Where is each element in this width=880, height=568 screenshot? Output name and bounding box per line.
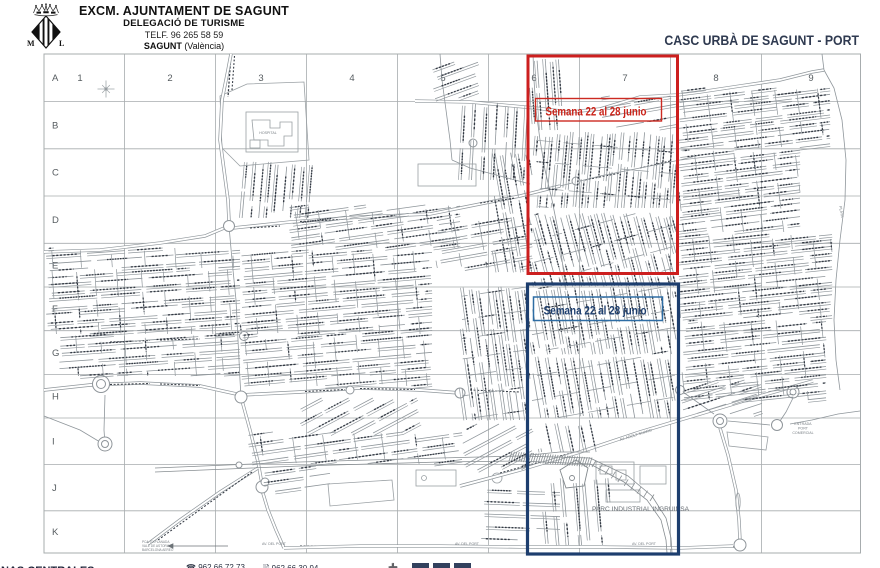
svg-text:M: M [27, 39, 35, 48]
svg-text:BARCELONA AEREO: BARCELONA AEREO [142, 548, 174, 552]
svg-text:AV. DEL PORT: AV. DEL PORT [262, 542, 287, 546]
svg-text:C: C [52, 168, 59, 179]
svg-text:PORT: PORT [798, 427, 809, 431]
svg-text:Semana 22 al 28 junio: Semana 22 al 28 junio [546, 104, 647, 118]
svg-text:3: 3 [258, 73, 263, 84]
svg-text:CASC URBÀ DE SAGUNT - PORT: CASC URBÀ DE SAGUNT - PORT [664, 32, 859, 48]
svg-text:B: B [52, 120, 58, 131]
svg-text:9: 9 [808, 73, 813, 84]
svg-text:AV. DEL PORT: AV. DEL PORT [455, 542, 480, 546]
svg-text:PARC INDUSTRIAL INGRUINSA: PARC INDUSTRIAL INGRUINSA [592, 506, 690, 513]
svg-text:4: 4 [349, 73, 354, 84]
svg-text:Semana 22 al 28 junio: Semana 22 al 28 junio [544, 304, 647, 318]
svg-text:G: G [52, 348, 59, 359]
svg-text:COMERCIAL: COMERCIAL [792, 431, 813, 435]
svg-text:AV. ADOLF SUARO: AV. ADOLF SUARO [619, 428, 652, 442]
svg-text:H: H [52, 392, 59, 403]
svg-text:J: J [52, 483, 57, 494]
svg-text:AV. DEL PORT: AV. DEL PORT [632, 542, 657, 546]
svg-text:1: 1 [77, 73, 82, 84]
svg-text:D: D [52, 215, 59, 226]
svg-text:7: 7 [622, 73, 627, 84]
svg-text:I: I [52, 437, 55, 448]
svg-text:HOSPITAL: HOSPITAL [259, 131, 277, 135]
svg-text:PLAYA: PLAYA [838, 206, 844, 219]
svg-text:2: 2 [167, 73, 172, 84]
svg-text:ENTRADA: ENTRADA [794, 422, 812, 426]
svg-text:K: K [52, 527, 59, 538]
svg-text:A: A [52, 73, 59, 84]
svg-text:8: 8 [713, 73, 718, 84]
svg-text:L: L [59, 39, 64, 48]
